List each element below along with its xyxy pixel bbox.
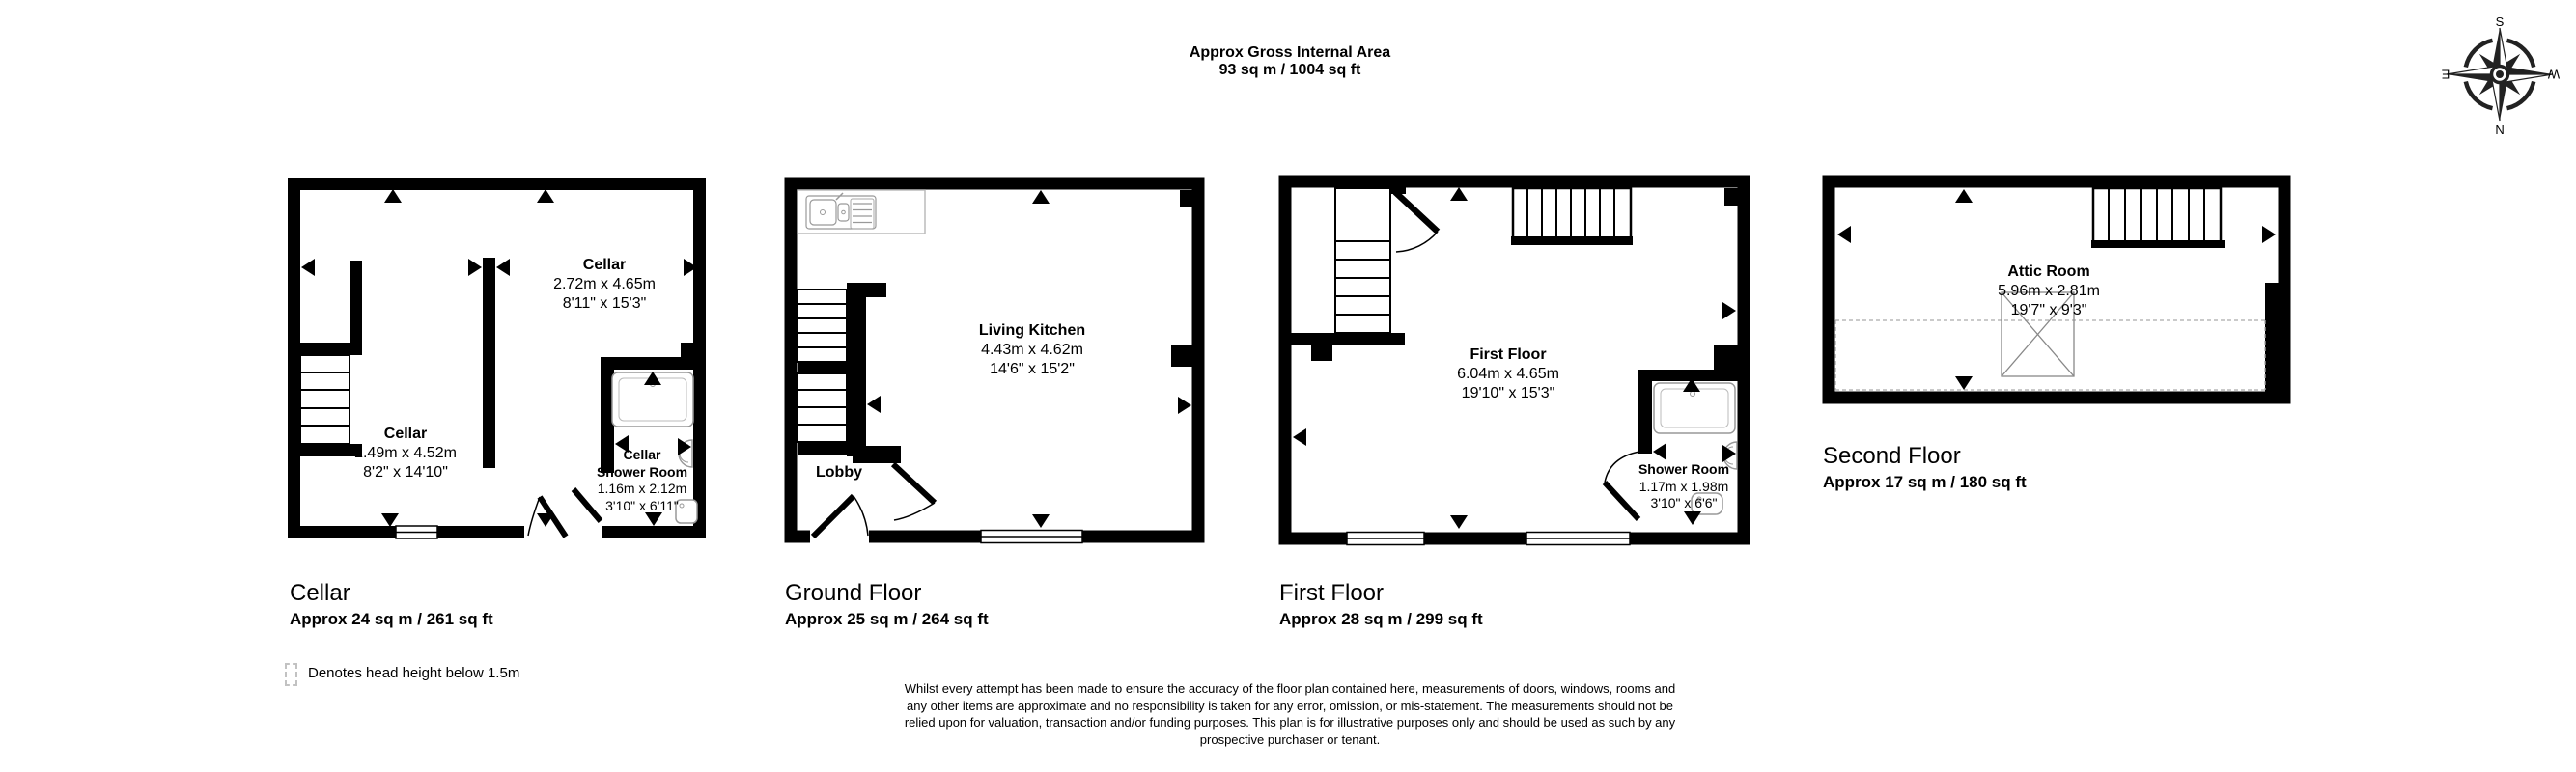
floor-title-first: First Floor Approx 28 sq m / 299 sq ft — [1279, 580, 1483, 629]
room-label-lobby: Lobby — [816, 463, 862, 482]
floorplan-sheet: Approx Gross Internal Area 93 sq m / 100… — [0, 0, 2576, 772]
ground-wall-block — [1171, 345, 1198, 367]
floor-title-cellar: Cellar Approx 24 sq m / 261 sq ft — [290, 580, 493, 629]
page-title-line1: Approx Gross Internal Area — [1190, 44, 1390, 62]
first-wall-notch — [1724, 188, 1738, 206]
first-stairs-up — [1511, 188, 1633, 245]
room-label-cellar-upper: Cellar 2.72m x 4.65m 8'11" x 15'3" — [553, 256, 656, 314]
room-label-cellar-lower: Cellar 2.49m x 4.52m 8'2" x 14'10" — [354, 425, 457, 482]
kitchen-sink-unit — [798, 190, 925, 234]
room-label-living-kitchen: Living Kitchen 4.43m x 4.62m 14'6" x 15'… — [979, 321, 1085, 379]
page-title-line2: 93 sq m / 1004 sq ft — [1190, 62, 1390, 79]
cellar-partition-wall — [483, 258, 495, 468]
ground-window — [981, 531, 1082, 543]
cellar-window — [396, 526, 437, 538]
ground-wall-notch — [1180, 190, 1198, 207]
room-label-first-shower: Shower Room 1.17m x 1.98m 3'10" x 6'6" — [1638, 461, 1729, 512]
lobby-wall-stub — [853, 446, 901, 463]
floor-title-ground: Ground Floor Approx 25 sq m / 264 sq ft — [785, 580, 989, 629]
room-label-attic: Attic Room 5.96m x 2.81m 19'7" x 9'3" — [1998, 262, 2100, 320]
compass-letter-east: E — [2441, 68, 2450, 82]
dashed-box-icon — [285, 663, 297, 686]
room-label-first-floor: First Floor 6.04m x 4.65m 19'10" x 15'3" — [1457, 345, 1559, 403]
compass-hub-dot — [2496, 70, 2504, 78]
room-label-cellar-shower: Cellar Shower Room 1.16m x 2.12m 3'10" x… — [597, 447, 687, 514]
disclaimer-text: Whilst every attempt has been made to en… — [905, 680, 1675, 748]
compass-letter-south: S — [2496, 14, 2505, 29]
floor-title-second: Second Floor Approx 17 sq m / 180 sq ft — [1823, 443, 2027, 492]
second-stairs — [2091, 188, 2225, 248]
legend-text: Denotes head height below 1.5m — [308, 663, 519, 684]
page-title: Approx Gross Internal Area 93 sq m / 100… — [1190, 44, 1390, 79]
compass-rose-icon: S N E W — [2433, 5, 2566, 145]
second-wall-thickening — [2265, 283, 2279, 392]
compass-letter-west: W — [2547, 68, 2560, 82]
compass-letter-north: N — [2495, 123, 2504, 137]
